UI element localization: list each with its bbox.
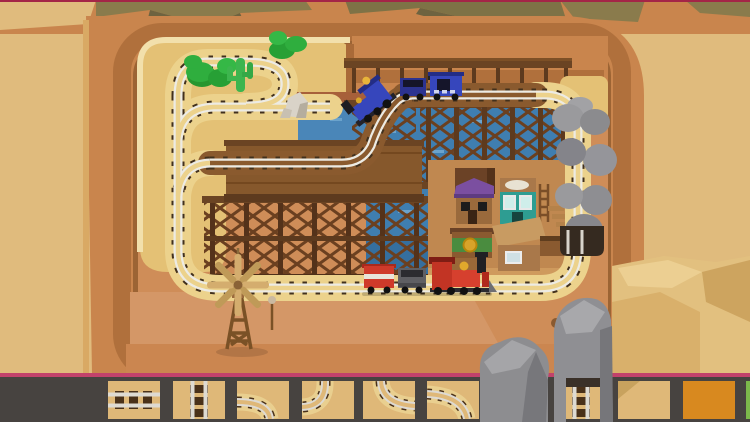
track-piece-toolbar	[0, 373, 750, 422]
toolbar-tile-1-straight-h[interactable]	[108, 381, 160, 419]
game-scene	[0, 0, 750, 422]
toolbar-tile-3-curve-left-bottom[interactable]	[237, 381, 289, 419]
toolbar-tile-4-curve-top-left[interactable]	[302, 381, 354, 419]
toolbar-tile-10-orange-special[interactable]	[683, 381, 735, 419]
purple-roof-house	[454, 178, 494, 224]
windmill-blades	[207, 254, 269, 316]
game-stage	[0, 0, 750, 422]
toolbar-tile-5-curve-top-right[interactable]	[363, 381, 415, 419]
mesa-outcrop	[612, 256, 750, 374]
toolbar-tile-8-straight-v[interactable]	[555, 381, 607, 419]
toolbar-tile-7-hidden-under-rock[interactable]	[491, 381, 543, 419]
toolbar-tile-9-empty-sand[interactable]	[618, 381, 670, 419]
toolbar-tile-2-straight-v[interactable]	[173, 381, 225, 419]
toolbar-tile-6-curve-left-bottom-wide[interactable]	[427, 381, 479, 419]
teal-storefront	[500, 178, 536, 224]
toolbar-tile-11-green-edge[interactable]	[746, 381, 750, 419]
screen-top-line	[0, 0, 750, 2]
